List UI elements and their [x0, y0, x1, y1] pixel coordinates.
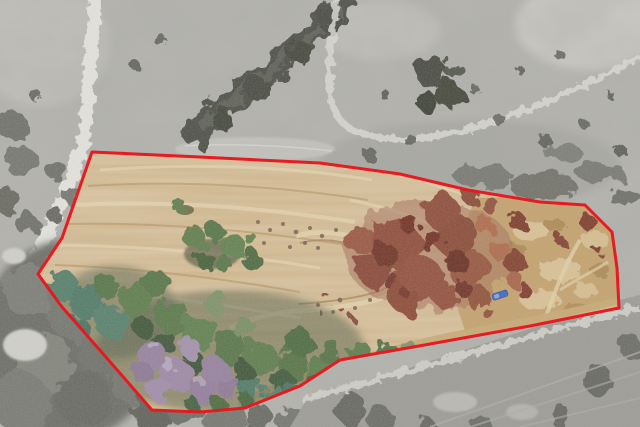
aerial-photo	[0, 0, 640, 427]
grain-overlay	[0, 0, 640, 427]
aerial-photo-canvas	[0, 0, 640, 427]
